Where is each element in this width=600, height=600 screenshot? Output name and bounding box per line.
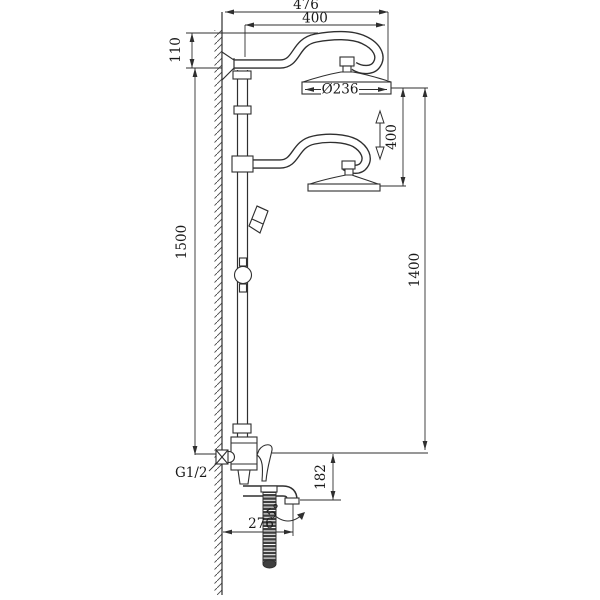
shower-column-diagram: 476 400 110 Ø236 400 1500 1400 182 276 5… [0, 0, 600, 600]
wall [215, 12, 223, 595]
handshower-holder [249, 206, 268, 233]
riser-column [238, 70, 248, 437]
dim-400-top-label: 400 [302, 11, 328, 27]
column-collar-mid [234, 106, 251, 114]
column-tee [232, 156, 253, 172]
drawing-canvas: 476 400 110 Ø236 400 1500 1400 182 276 5… [0, 0, 600, 600]
column-collar-top [233, 71, 251, 79]
dim-400-travel-label: 400 [384, 124, 400, 150]
spout-outlet [285, 498, 299, 504]
dim-110-label: 110 [168, 37, 184, 63]
upper-gooseneck-arm [234, 36, 379, 70]
lever-handle [257, 445, 272, 481]
dim-236-label: Ø236 [322, 82, 359, 98]
column-coupling [233, 424, 251, 433]
dim-1500-label: 1500 [174, 225, 190, 259]
dim-182-label: 182 [313, 464, 329, 490]
faucet-body [216, 424, 272, 484]
inlet-thread-label: G1/2 [175, 465, 208, 481]
wall-flange [222, 52, 234, 80]
travel-arrow [376, 111, 384, 159]
wall-hatch [215, 30, 223, 595]
fixture [216, 36, 391, 568]
dim-1400-label: 1400 [407, 253, 423, 287]
